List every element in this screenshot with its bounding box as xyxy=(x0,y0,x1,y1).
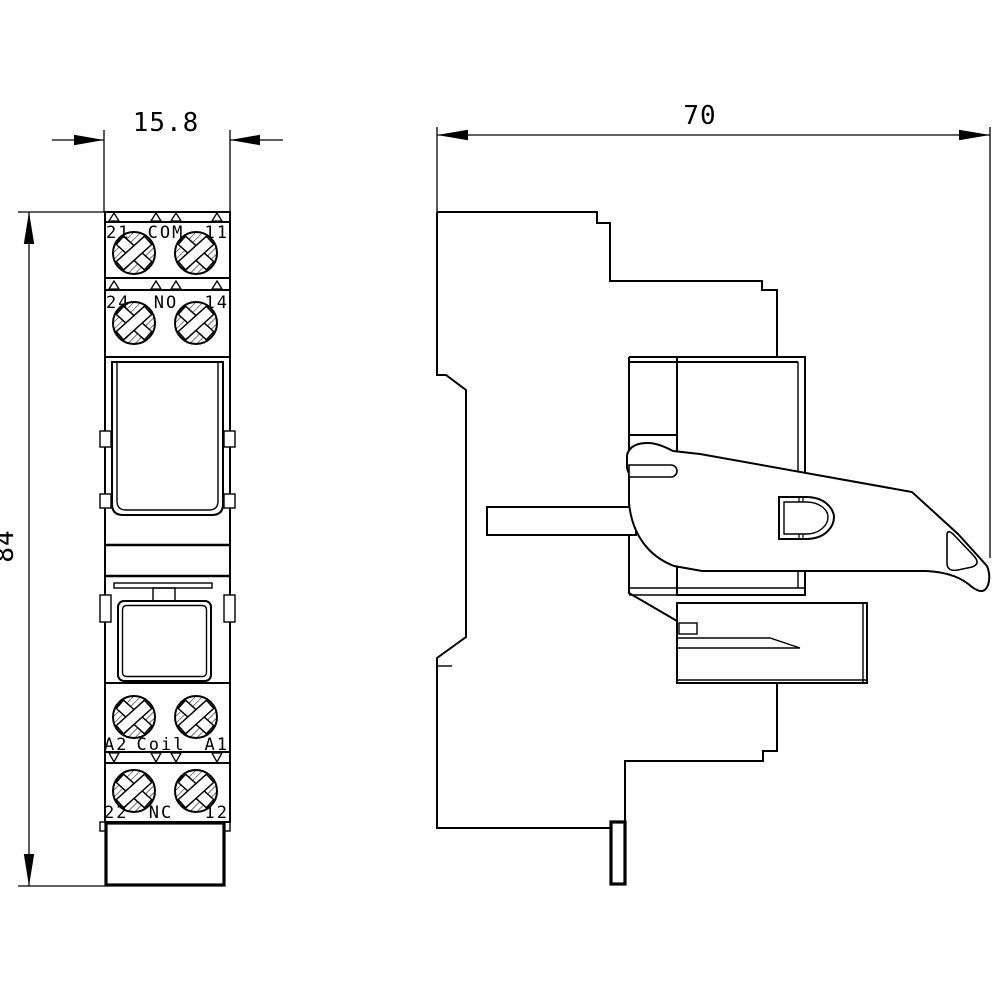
lever-hook-slot xyxy=(629,465,677,477)
label-side-clips xyxy=(100,595,235,622)
socket-lower-outline xyxy=(677,603,867,683)
marking-label-outline xyxy=(118,601,211,681)
terminal-screw-A2 xyxy=(113,696,155,738)
terminal-screws xyxy=(113,232,217,812)
marking-label-inner xyxy=(123,606,207,677)
label-nc: NC xyxy=(149,803,173,823)
foot-outline xyxy=(106,823,224,885)
release-slider-tab xyxy=(487,507,636,535)
arrowhead xyxy=(437,130,468,140)
relay-cover-front xyxy=(100,362,235,515)
label-14: 14 xyxy=(205,293,229,313)
label-holder-lip xyxy=(114,583,212,588)
marking-label-holder xyxy=(100,583,235,681)
arrowhead xyxy=(230,135,260,145)
socket-lower-inner-lines xyxy=(677,603,867,683)
side-profile xyxy=(437,212,989,884)
front-height-value: 84 xyxy=(0,529,20,562)
front-foot xyxy=(100,822,230,885)
front-width-dimension: 15.8 xyxy=(52,108,283,212)
label-11: 11 xyxy=(205,223,229,243)
drawing-canvas: 15.8 84 xyxy=(0,0,1000,1000)
label-12: 12 xyxy=(205,803,229,823)
label-24: 24 xyxy=(106,293,130,313)
mid-band-lines xyxy=(105,545,230,576)
arrowhead xyxy=(74,135,104,145)
label-a1: A1 xyxy=(205,735,229,755)
front-height-dimension: 84 xyxy=(0,212,105,886)
socket-top-profile xyxy=(437,212,777,357)
relay-dimension-drawing: 15.8 84 xyxy=(0,0,1000,1000)
label-holder-tab xyxy=(153,588,175,601)
relay-cover-outline xyxy=(112,362,223,515)
front-view: 15.8 84 xyxy=(0,108,283,886)
arrowhead xyxy=(959,130,990,140)
label-a2: A2 xyxy=(104,735,128,755)
side-depth-value: 70 xyxy=(683,101,716,131)
din-rail-edge xyxy=(611,822,625,884)
terminal-screw-A1 xyxy=(175,696,217,738)
socket-bottom-profile xyxy=(625,683,777,822)
relay-cover-inner-line xyxy=(117,362,218,510)
ejector-lever xyxy=(627,443,989,591)
socket-slot-detail xyxy=(677,638,800,648)
label-22: 22 xyxy=(104,803,128,823)
label-21: 21 xyxy=(106,223,130,243)
side-view: 70 xyxy=(437,101,990,884)
front-width-value: 15.8 xyxy=(133,108,200,138)
socket-terminal-detail xyxy=(679,623,697,634)
arrowhead xyxy=(24,854,34,886)
label-no: NO xyxy=(154,293,178,313)
label-coil: Coil xyxy=(137,735,186,755)
cover-side-clips xyxy=(100,431,235,508)
arrowhead xyxy=(24,212,34,244)
label-com: COM xyxy=(148,223,185,243)
